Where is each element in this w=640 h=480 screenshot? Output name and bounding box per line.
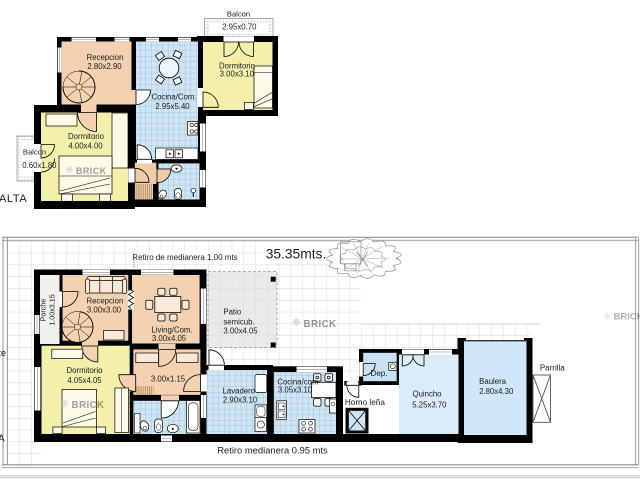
svg-text:Retiro de medianera 1.00 mts: Retiro de medianera 1.00 mts: [132, 253, 237, 262]
svg-text:ALTA: ALTA: [0, 193, 27, 205]
svg-text:5.25x3.70: 5.25x3.70: [412, 400, 447, 409]
svg-text:3.05x3.10: 3.05x3.10: [278, 386, 313, 395]
svg-text:Horno leña: Horno leña: [345, 398, 386, 407]
svg-text:te: te: [0, 348, 6, 358]
svg-text:Dep.: Dep.: [371, 369, 388, 378]
svg-text:Quincho: Quincho: [412, 390, 442, 399]
svg-text:BRICK: BRICK: [304, 319, 337, 330]
svg-text:Parrilla: Parrilla: [540, 363, 565, 372]
svg-text:Baulera: Baulera: [479, 377, 507, 386]
svg-text:4.05x4.05: 4.05x4.05: [67, 376, 102, 385]
svg-text:Dormitorio: Dormitorio: [67, 366, 104, 375]
svg-text:3.00x4.05: 3.00x4.05: [223, 327, 258, 336]
svg-text:Dormitorio: Dormitorio: [68, 132, 105, 141]
svg-text:1.00x3.15: 1.00x3.15: [48, 294, 57, 326]
svg-text:35.35mts.: 35.35mts.: [266, 247, 327, 262]
svg-text:Cocina/Com.: Cocina/Com.: [151, 92, 196, 101]
svg-text:Balcon: Balcon: [23, 147, 46, 156]
svg-text:2.90x3.10: 2.90x3.10: [223, 396, 258, 405]
svg-text:2.95x0.70: 2.95x0.70: [222, 23, 257, 32]
svg-text:Living/Com.: Living/Com.: [151, 325, 192, 334]
svg-text:Retiro medianera 0.95 mts: Retiro medianera 0.95 mts: [217, 445, 328, 456]
svg-text:Recepcion: Recepcion: [86, 296, 123, 305]
svg-text:A: A: [0, 434, 5, 445]
svg-text:BRICK: BRICK: [72, 400, 105, 411]
svg-text:3.00x1.15: 3.00x1.15: [151, 375, 186, 384]
svg-text:2.80x2.90: 2.80x2.90: [87, 62, 122, 71]
svg-text:3.00x4.05: 3.00x4.05: [152, 334, 187, 343]
svg-text:Lavadero: Lavadero: [223, 386, 256, 395]
svg-text:BRICK: BRICK: [76, 166, 107, 176]
svg-text:3.00x3.10: 3.00x3.10: [220, 69, 255, 78]
svg-text:Patio: Patio: [223, 308, 241, 317]
svg-text:3.00x3.00: 3.00x3.00: [87, 305, 122, 314]
svg-text:Porche: Porche: [39, 299, 48, 322]
svg-text:2.95x5.40: 2.95x5.40: [155, 102, 190, 111]
svg-text:Recepcion: Recepcion: [87, 53, 124, 62]
svg-text:2.80x4.30: 2.80x4.30: [479, 387, 514, 396]
svg-text:semicub.: semicub.: [223, 317, 254, 326]
svg-text:4.00x4.00: 4.00x4.00: [68, 141, 103, 150]
svg-text:0.60x1.80: 0.60x1.80: [22, 161, 57, 170]
svg-text:BRICK: BRICK: [614, 312, 640, 323]
svg-text:Balcon: Balcon: [227, 9, 250, 18]
